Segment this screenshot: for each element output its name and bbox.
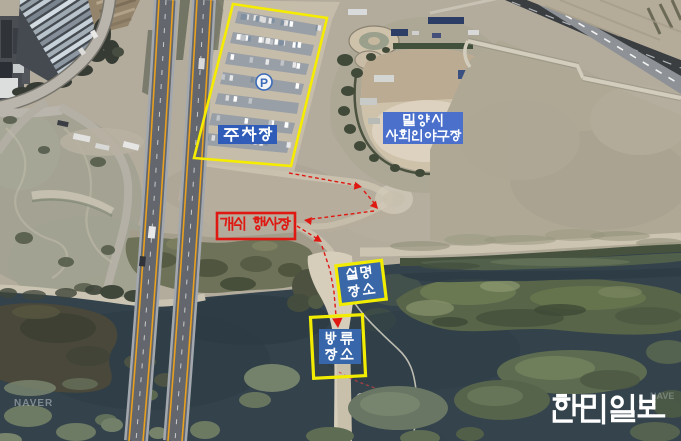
svg-text:NAVER: NAVER — [14, 398, 53, 409]
svg-text:P: P — [260, 76, 268, 90]
